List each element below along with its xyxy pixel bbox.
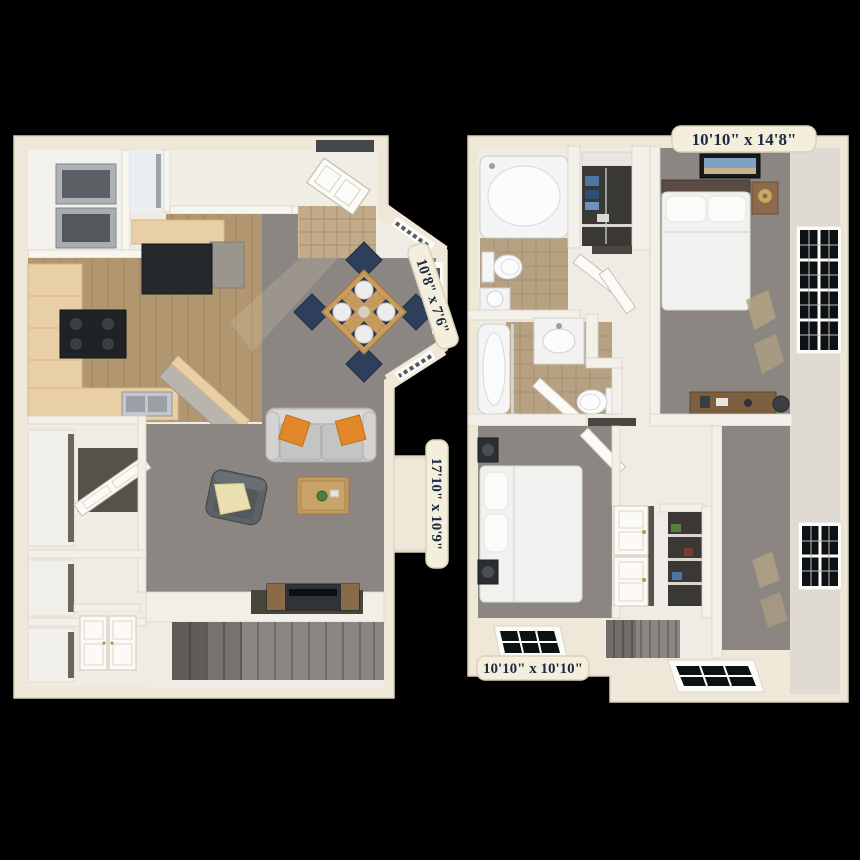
stored-item [585,202,599,210]
door-knob [102,641,105,644]
bed-queen [662,180,750,310]
counter-end [210,242,244,288]
dimension-label-bedroom1: 10'10" x 14'8" [672,126,816,152]
under-stair-closet [74,604,140,674]
headboard [662,180,750,192]
wall [612,426,620,506]
stored-item [672,572,682,580]
table-item [330,490,339,497]
den-window [798,522,842,590]
closet-shelf [668,582,702,585]
stored-item [684,548,693,556]
washer-door [62,170,110,198]
sofa [266,408,376,462]
hall-closet [130,150,164,212]
stored-item [585,176,599,186]
closet-shelf [668,558,702,561]
sink-basin [148,396,167,412]
lamp-base [763,194,768,199]
laundry-closet [28,150,122,250]
burner [102,318,114,330]
plate [355,281,373,299]
stored-item [597,214,609,222]
closet-shelf [582,224,632,227]
sink-basin [126,396,145,412]
closet-shelf-band [582,152,632,166]
bathroom-1 [468,146,580,320]
closet-door-slit [68,632,74,678]
label-text: 10'10" x 10'10" [483,661,583,677]
pillow [484,514,508,552]
tub-faucet [489,163,495,169]
wall [702,506,712,618]
dimension-label-bedroom2: 10'10" x 10'10" [477,656,589,680]
closet-door-slit [68,434,74,542]
floor-plan-image: 10'10" x 14'8" 10'8" x 7'6" 17'10" x 10'… [0,0,860,860]
burner [70,338,82,350]
wall [650,146,660,424]
toilet-bowl [577,390,607,414]
bathtub-basin [488,166,560,226]
speaker-cone [482,566,494,578]
closet-floor [28,560,74,616]
desk-item [716,398,728,406]
wall [468,414,586,426]
sink-basin [487,291,503,307]
dimension-label-living: 17'10" x 10'9" [426,440,448,568]
toilet-tank [482,252,494,282]
plate [333,303,351,321]
door-knob [642,578,646,582]
stored-item [585,190,599,199]
speaker-cone [482,444,494,456]
closet-floor [28,628,74,682]
stored-item [671,524,681,532]
centerpiece [358,306,370,318]
desk-item [700,396,710,408]
shower-glass [511,324,514,414]
tv-console [267,584,359,610]
doorway-gap [588,418,636,426]
burner [70,318,82,330]
wall [612,606,620,618]
living-bump-wall [394,458,428,550]
wall [568,146,580,248]
stair-shadow [172,622,206,680]
wall [660,504,704,512]
bedroom1-window [796,226,842,354]
wall [28,550,146,558]
console-wood-end [267,584,285,610]
wall [74,604,140,612]
refrigerator [142,244,212,294]
hall-closet-door [156,154,161,208]
bathroom-2 [478,314,622,422]
wall [650,414,792,426]
stove [60,310,126,358]
tv [289,589,337,596]
staircase-upper [606,620,680,658]
first-floor-plan [14,136,447,698]
second-floor-plan [468,136,848,702]
desk-chair [773,396,789,412]
door-knob [642,530,646,534]
wall [612,368,622,414]
doorway-gap [592,246,632,254]
landing-floor [146,680,384,688]
wall [122,150,130,254]
wall [28,416,146,424]
closet-floor [28,430,74,546]
upper-cabinet [132,220,224,244]
faucet [556,323,562,329]
pillow [484,472,508,510]
nightstand [752,182,778,214]
closet-shelf [668,534,702,537]
door-knob [110,641,113,644]
sink-basin [543,329,575,353]
label-text: 17'10" x 10'9" [428,458,444,551]
wall-art [700,154,760,178]
sofa-arm [266,412,279,460]
closet-interior-slit [648,506,654,606]
burner [102,338,114,350]
staircase [146,622,384,688]
label-text: 10'10" x 14'8" [692,130,797,149]
hall-bottom-window [668,660,764,692]
console-wood-end [341,584,359,610]
wall [170,206,292,214]
stair-shadow [606,620,636,658]
closet-door-slit [68,564,74,612]
plate [377,303,395,321]
coffee-table [297,477,349,514]
entry-doorway-gap [316,140,374,152]
pillow [666,196,706,222]
pillow [708,196,746,222]
wall [164,150,170,212]
desk-item [744,399,752,407]
wall [138,416,146,592]
wall [632,146,650,250]
vanity-sink [534,318,584,364]
plate [355,325,373,343]
wall [586,358,622,368]
toilet-bowl [494,255,522,279]
floor-plan-svg: 10'10" x 14'8" 10'8" x 7'6" 17'10" x 10'… [0,0,860,860]
wall [712,426,722,658]
desk [690,392,789,414]
bathtub-basin [483,333,505,405]
bedroom2-window [494,626,567,658]
dryer-door [62,214,110,242]
plant [317,491,327,501]
